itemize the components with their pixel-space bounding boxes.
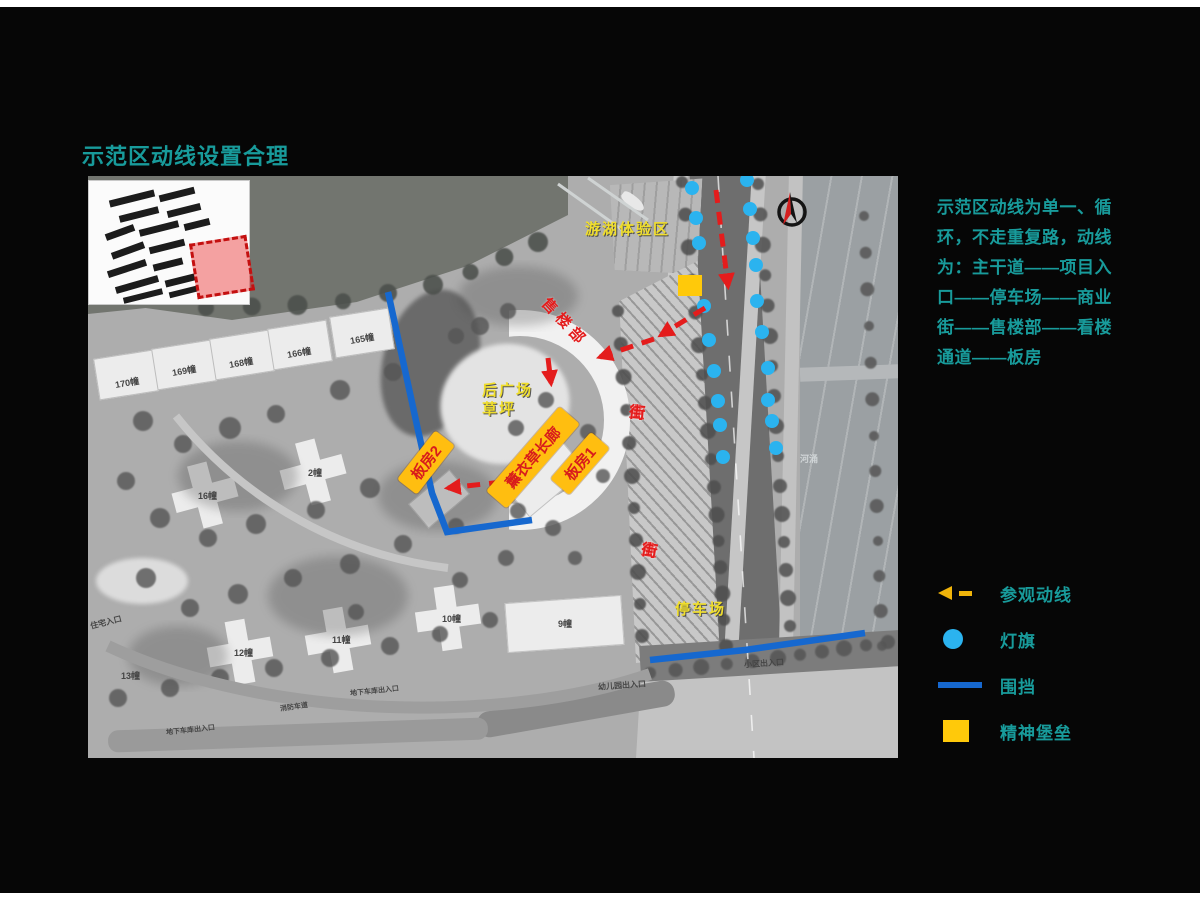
legend-symbol-light-flag: [938, 629, 1000, 649]
parking-lot-label: 停车场: [675, 601, 726, 620]
spirit-fortress-marker: [678, 275, 702, 296]
site-map: 170幢169幢168幢166幢165幢16幢2幢13幢12幢11幢10幢9幢住…: [88, 176, 898, 758]
route-dash-icon: [959, 591, 972, 596]
description-line: 通道——板房: [937, 343, 1142, 373]
description-line: 口——停车场——商业: [937, 283, 1142, 313]
legend: 参观动线灯旗围挡精神堡垒: [938, 570, 1168, 754]
spirit-fortress-icon: [943, 720, 969, 742]
legend-item-label: 灯旗: [1000, 627, 1036, 652]
vertical-char: 街: [628, 403, 646, 425]
description-line: 环，不走重复路，动线: [937, 223, 1142, 253]
fence-line-icon: [938, 682, 982, 688]
legend-item: 围挡: [938, 662, 1168, 708]
lake-tour-zone-label: 游湖体验区: [585, 221, 670, 240]
legend-item: 精神堡垒: [938, 708, 1168, 754]
legend-item-label: 围挡: [1000, 673, 1036, 698]
legend-item: 参观动线: [938, 570, 1168, 616]
description-line: 街——售楼部——看楼: [937, 313, 1142, 343]
description-line: 为：主干道——项目入: [937, 253, 1142, 283]
bottom-white-band: [0, 893, 1200, 900]
page-title: 示范区动线设置合理: [82, 139, 289, 171]
rear-plaza-lawn-label: 后广场 草坪: [482, 382, 533, 420]
commercial-street-label-1: 商业街: [628, 403, 648, 405]
commercial-street-label-2: 商业街: [641, 540, 661, 543]
legend-item-label: 参观动线: [1000, 581, 1072, 606]
description-text: 示范区动线为单一、循环，不走重复路，动线为：主干道——项目入口——停车场——商业…: [937, 193, 1142, 373]
legend-symbol-fence: [938, 682, 1000, 688]
legend-symbol-spirit-fortress: [938, 720, 1000, 742]
slide: 示范区动线设置合理 170幢169幢168幢166幢165幢16幢2幢13幢12…: [0, 0, 1200, 900]
legend-item: 灯旗: [938, 616, 1168, 662]
annotations-layer: 游湖体验区后广场 草坪停车场售楼部商业街商业街薰衣草长廊板房1板房2: [88, 176, 898, 758]
legend-item-label: 精神堡垒: [1000, 719, 1072, 744]
vertical-char: 街: [640, 541, 659, 563]
model-house-2-box: 板房2: [397, 430, 455, 494]
sales-office-label: 售楼部: [537, 295, 592, 352]
route-arrowhead-icon: [938, 586, 952, 600]
legend-symbol-route-arrow: [938, 586, 1000, 600]
top-white-band: [0, 0, 1200, 7]
description-line: 示范区动线为单一、循: [937, 193, 1142, 223]
light-flag-icon: [943, 629, 963, 649]
